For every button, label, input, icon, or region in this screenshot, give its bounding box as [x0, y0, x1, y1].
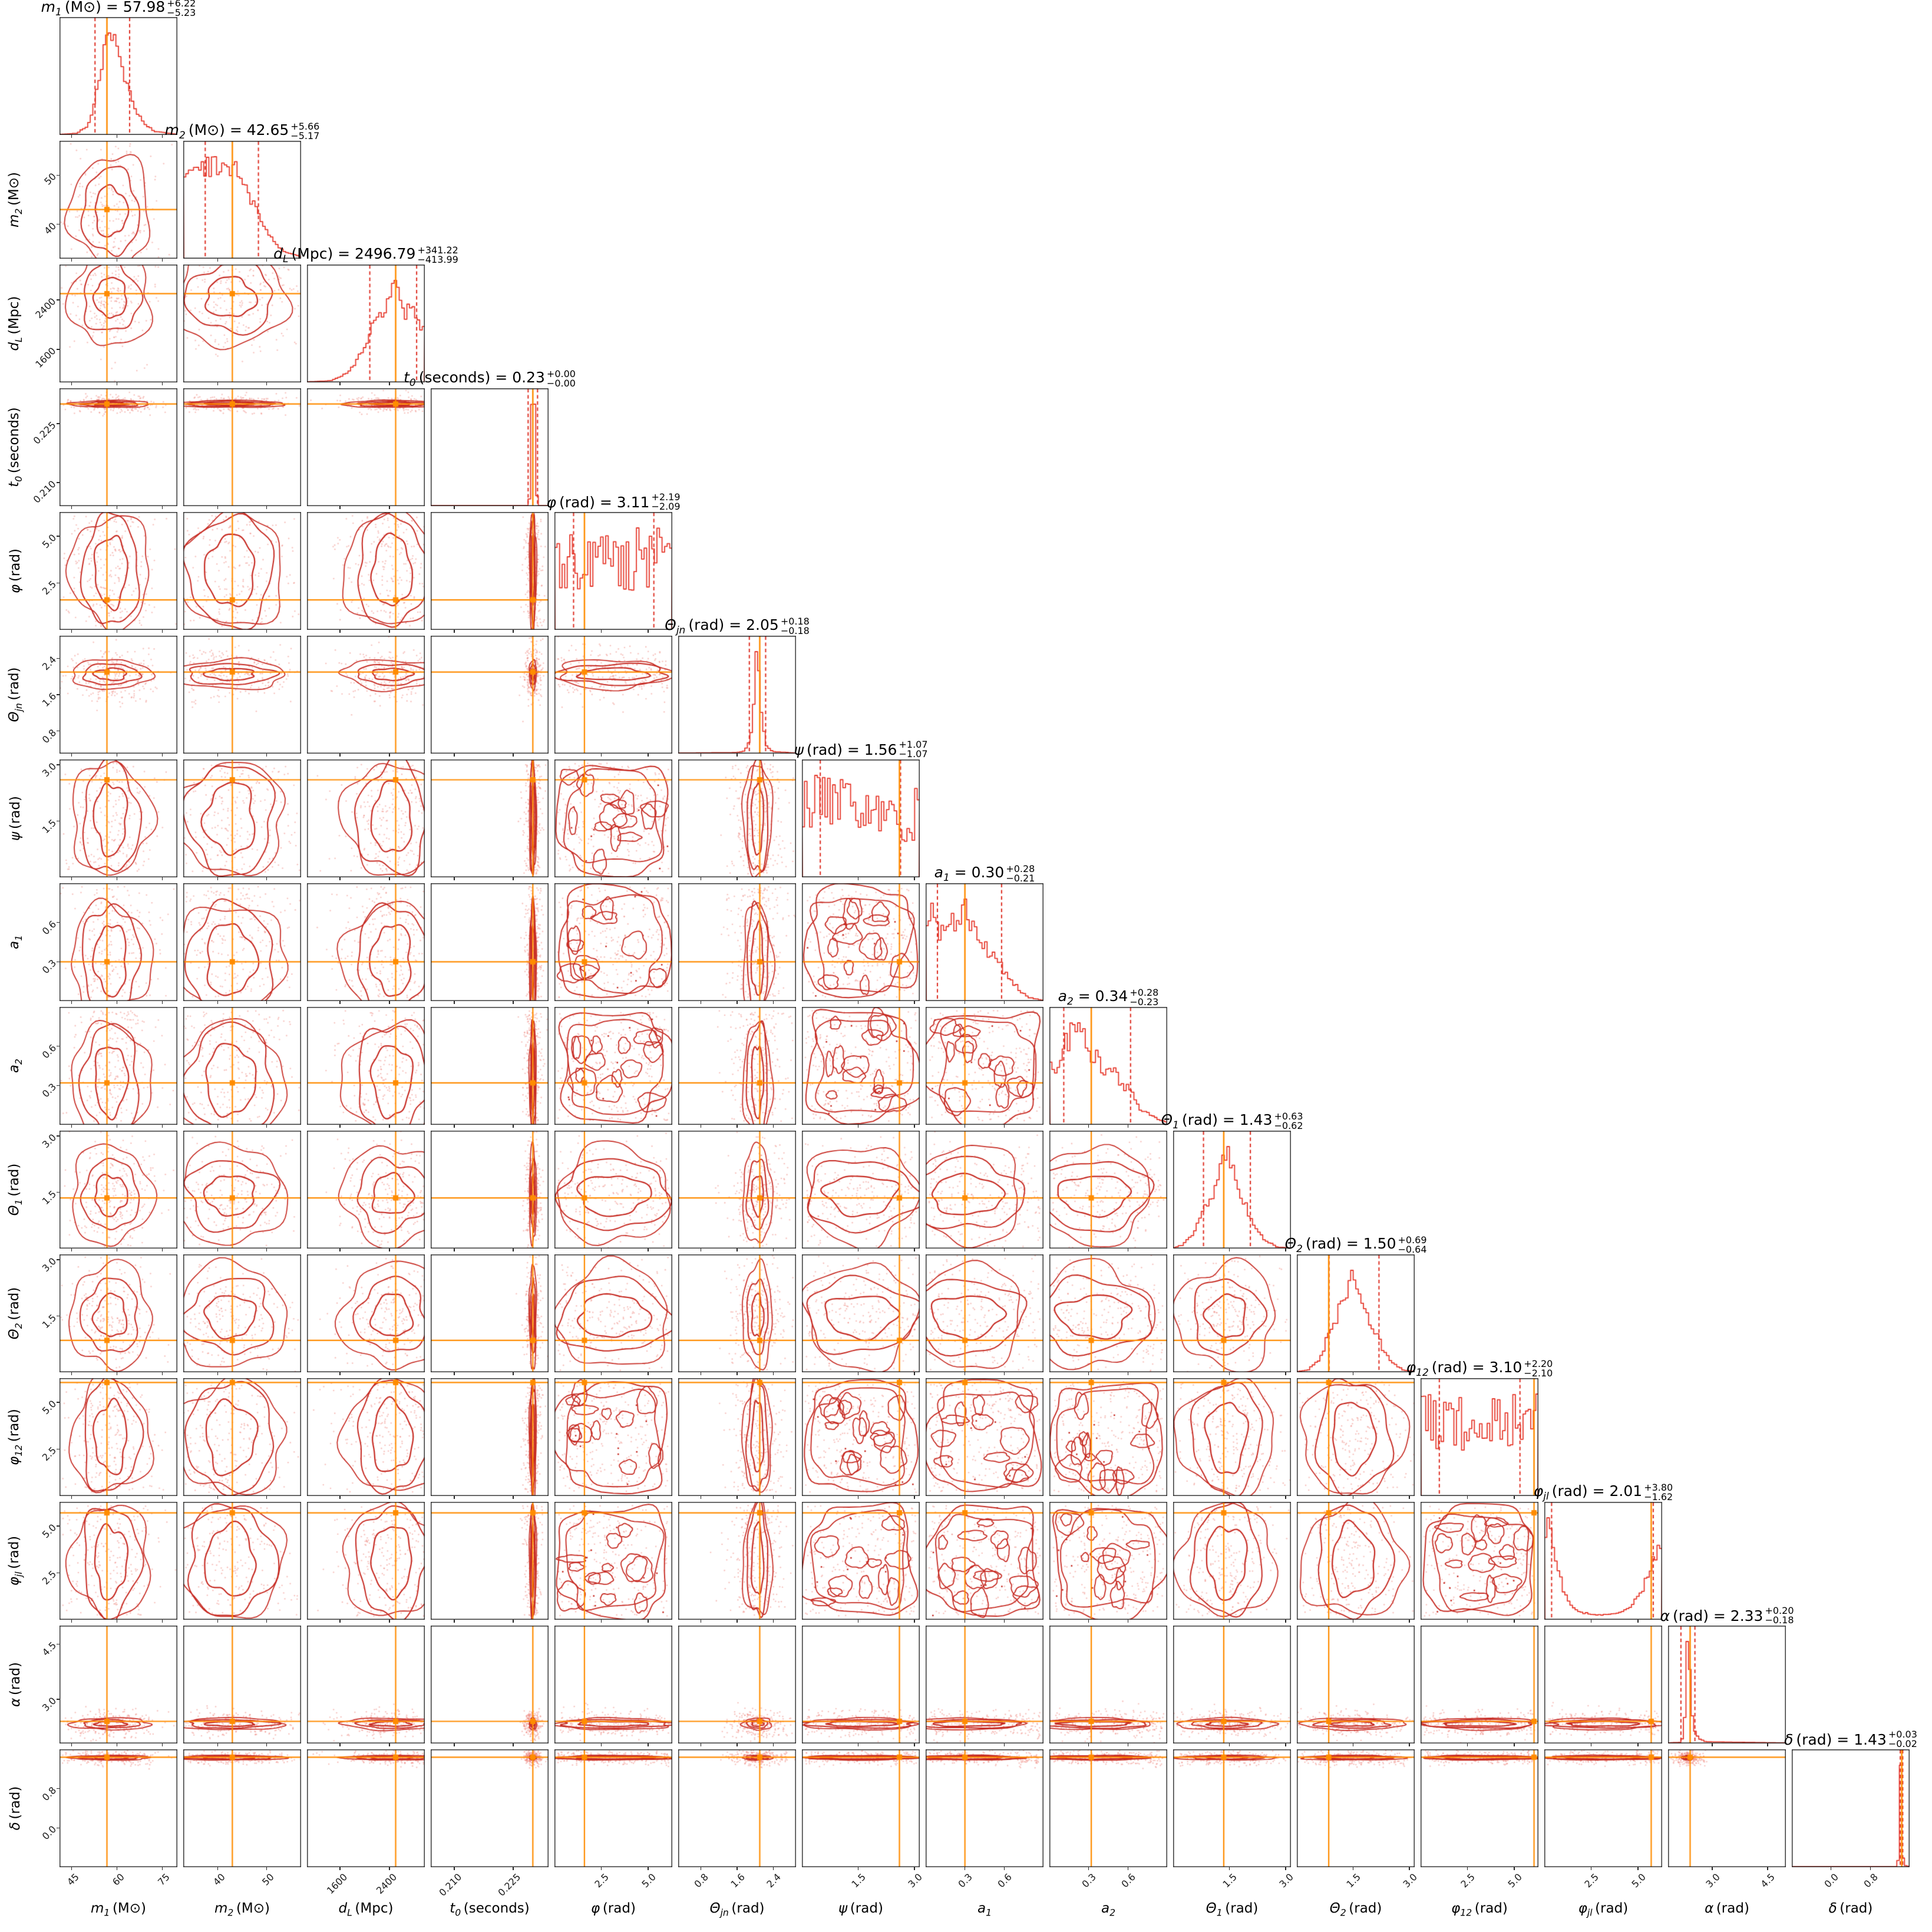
- x-tick-m2-0: [217, 1496, 219, 1499]
- subplot-dL-t0: [307, 388, 425, 506]
- contour-canvas-phi-theta2: [554, 1254, 672, 1372]
- x-tick-label-delta-0: 0.0: [1822, 1871, 1841, 1890]
- x-tick-t0-1: [513, 1743, 514, 1746]
- contour-canvas-dL-alpha: [307, 1626, 425, 1743]
- x-tick-dL-0: [339, 1867, 341, 1870]
- subplot-phi-phi12: [554, 1378, 672, 1496]
- x-tick-phi-0: [601, 1743, 602, 1746]
- subplot-t0-phijl: [431, 1502, 549, 1620]
- contour-canvas-dL-phi: [307, 512, 425, 630]
- subplot-m1-delta: [60, 1749, 177, 1867]
- x-tick-thetajn-1: [737, 1620, 738, 1623]
- subplot-m2-thetajn: [183, 636, 301, 754]
- contour-canvas-a1-theta1: [926, 1131, 1043, 1249]
- x-tick-label-phijl-0: 2.5: [1583, 1871, 1601, 1890]
- contour-canvas-theta1-phi12: [1173, 1378, 1291, 1496]
- contour-canvas-thetajn-delta: [678, 1749, 796, 1867]
- contour-canvas-a1-delta: [926, 1749, 1043, 1867]
- x-tick-label-a2-1: 0.6: [1119, 1871, 1137, 1890]
- subplot-phi-theta1: [554, 1131, 672, 1249]
- contour-canvas-psi-theta1: [802, 1131, 920, 1249]
- subplot-phi-a1: [554, 883, 672, 1001]
- x-tick-phi-1: [648, 1372, 649, 1375]
- x-tick-theta2-0: [1353, 1743, 1354, 1746]
- x-tick-t0-1: [513, 877, 514, 880]
- x-tick-m2-0: [217, 1743, 219, 1746]
- x-tick-m1-0: [71, 754, 72, 757]
- contour-canvas-phi-theta1: [554, 1131, 672, 1249]
- y-tick-label-a2-1: 0.6: [39, 1042, 58, 1060]
- y-axis-label-psi: ψ (rad): [8, 796, 23, 841]
- x-axis-label-m2: m2 (M⊙): [214, 1901, 270, 1918]
- contour-canvas-m1-theta1: [60, 1131, 177, 1249]
- x-tick-label-dL-0: 1600: [325, 1871, 349, 1896]
- x-tick-m1-0: [71, 630, 72, 633]
- x-tick-a1-0: [965, 1125, 966, 1128]
- x-tick-m1-1: [117, 506, 118, 509]
- subplot-m2-phi12: [183, 1378, 301, 1496]
- contour-canvas-m1-a2: [60, 1007, 177, 1125]
- x-tick-dL-1: [389, 1867, 390, 1870]
- subplot-phi12-delta: [1421, 1749, 1538, 1867]
- subplot-phi-a2: [554, 1007, 672, 1125]
- x-tick-phi-0: [601, 754, 602, 757]
- y-axis-label-t0: t0 (seconds): [6, 407, 24, 487]
- contour-canvas-t0-a1: [431, 883, 549, 1001]
- hist-canvas-alpha: [1668, 1626, 1786, 1743]
- hist-canvas-phijl: [1544, 1502, 1662, 1620]
- subplot-theta1-delta: [1173, 1749, 1291, 1867]
- param-title-errors-alpha: +0.20−0.18: [1765, 1606, 1794, 1626]
- x-tick-t0-1: [513, 1867, 514, 1870]
- contour-canvas-dL-phi12: [307, 1378, 425, 1496]
- y-tick-phijl-1: [57, 1525, 60, 1527]
- subplot-thetajn-phijl: [678, 1502, 796, 1620]
- contour-canvas-theta2-phijl: [1297, 1502, 1415, 1620]
- contour-canvas-t0-psi: [431, 759, 549, 877]
- contour-canvas-psi-theta2: [802, 1254, 920, 1372]
- x-tick-dL-0: [339, 630, 341, 633]
- subplot-dL-phi: [307, 512, 425, 630]
- x-tick-theta2-1: [1409, 1496, 1410, 1499]
- x-tick-t0-1: [513, 1249, 514, 1251]
- x-tick-psi-0: [858, 1125, 859, 1128]
- subplot-m1-a1: [60, 883, 177, 1001]
- x-tick-m2-1: [266, 1620, 267, 1623]
- x-tick-m1-0: [71, 1867, 72, 1870]
- x-tick-psi-1: [914, 1867, 915, 1870]
- subplot-phi12-phijl: [1421, 1502, 1538, 1620]
- x-tick-t0-0: [454, 1125, 455, 1128]
- x-tick-label-dL-1: 2400: [374, 1871, 399, 1896]
- x-tick-m1-0: [71, 1125, 72, 1128]
- x-tick-phijl-0: [1591, 1743, 1592, 1746]
- x-tick-psi-1: [914, 877, 915, 880]
- hist-thetajn: [678, 636, 796, 754]
- subplot-dL-psi: [307, 759, 425, 877]
- contour-canvas-phi-phi12: [554, 1378, 672, 1496]
- subplot-m2-alpha: [183, 1626, 301, 1743]
- x-tick-m1-2: [162, 259, 163, 262]
- contour-canvas-phi-a1: [554, 883, 672, 1001]
- y-tick-phi-1: [57, 536, 60, 537]
- x-tick-thetajn-0: [701, 1496, 702, 1499]
- x-tick-a1-1: [1004, 1496, 1005, 1499]
- x-tick-m1-1: [117, 135, 118, 138]
- contour-canvas-a2-phijl: [1049, 1502, 1167, 1620]
- y-tick-label-thetajn-1: 1.6: [39, 691, 58, 709]
- x-tick-a2-0: [1088, 1496, 1089, 1499]
- x-axis-label-a1: a1: [977, 1901, 992, 1918]
- x-tick-a1-1: [1004, 1249, 1005, 1251]
- contour-canvas-psi-a1: [802, 883, 920, 1001]
- x-tick-a2-1: [1128, 1125, 1129, 1128]
- x-tick-a2-1: [1128, 1496, 1129, 1499]
- param-title-errors-theta1: +0.63−0.62: [1274, 1112, 1303, 1131]
- x-tick-label-alpha-0: 3.0: [1703, 1871, 1722, 1890]
- contour-canvas-phi-psi: [554, 759, 672, 877]
- hist-psi: [802, 759, 920, 877]
- subplot-m2-phijl: [183, 1502, 301, 1620]
- x-tick-alpha-1: [1767, 1867, 1768, 1870]
- subplot-a1-delta: [926, 1749, 1043, 1867]
- subplot-phijl-alpha: [1544, 1626, 1662, 1743]
- subplot-dL-delta: [307, 1749, 425, 1867]
- contour-canvas-dL-thetajn: [307, 636, 425, 754]
- x-tick-theta1-0: [1229, 1249, 1230, 1251]
- param-title-errors-a2: +0.28−0.23: [1130, 988, 1158, 1008]
- x-tick-phijl-1: [1637, 1620, 1639, 1623]
- x-tick-m1-2: [162, 382, 163, 385]
- x-tick-a1-1: [1004, 1867, 1005, 1870]
- subplot-psi-phi12: [802, 1378, 920, 1496]
- hist-m2: [183, 141, 301, 259]
- contour-canvas-a2-theta1: [1049, 1131, 1167, 1249]
- x-tick-psi-0: [858, 1867, 859, 1870]
- x-tick-thetajn-1: [737, 1867, 738, 1870]
- subplot-m1-thetajn: [60, 636, 177, 754]
- contour-canvas-phijl-alpha: [1544, 1626, 1662, 1743]
- contour-canvas-t0-phi12: [431, 1378, 549, 1496]
- x-tick-a2-0: [1088, 1249, 1089, 1251]
- x-tick-label-theta1-0: 1.5: [1221, 1871, 1239, 1890]
- hist-canvas-a2: [1049, 1007, 1167, 1125]
- x-tick-m2-1: [266, 1125, 267, 1128]
- x-tick-t0-0: [454, 1249, 455, 1251]
- x-axis-label-phi: φ (rad): [591, 1901, 636, 1916]
- x-tick-thetajn-0: [701, 1620, 702, 1623]
- subplot-a1-alpha: [926, 1626, 1043, 1743]
- x-tick-m1-0: [71, 506, 72, 509]
- y-axis-label-a2: a2: [6, 1059, 24, 1073]
- x-tick-a2-1: [1128, 1867, 1129, 1870]
- x-tick-thetajn-1: [737, 1496, 738, 1499]
- y-tick-alpha-0: [57, 1699, 60, 1700]
- subplot-dL-theta1: [307, 1131, 425, 1249]
- y-tick-label-theta1-0: 1.5: [39, 1188, 58, 1206]
- x-tick-psi-0: [858, 877, 859, 880]
- subplot-m1-alpha: [60, 1626, 177, 1743]
- param-title-errors-delta: +0.03−0.02: [1888, 1730, 1917, 1749]
- x-tick-phi-0: [601, 877, 602, 880]
- x-tick-dL-0: [339, 506, 341, 509]
- x-tick-psi-0: [858, 1496, 859, 1499]
- x-tick-psi-0: [858, 1001, 859, 1004]
- param-title-text-m2: m2 (M⊙) = 42.65: [165, 121, 289, 141]
- subplot-psi-a1: [802, 883, 920, 1001]
- contour-canvas-thetajn-phijl: [678, 1502, 796, 1620]
- y-tick-t0-1: [57, 423, 60, 424]
- x-tick-t0-0: [454, 1496, 455, 1499]
- param-title-a1: a1 = 0.30+0.28−0.21: [934, 864, 1035, 884]
- contour-canvas-t0-a2: [431, 1007, 549, 1125]
- y-tick-label-a2-0: 0.3: [39, 1081, 58, 1099]
- y-tick-dL-0: [57, 349, 60, 350]
- subplot-m2-phi: [183, 512, 301, 630]
- param-title-psi: ψ (rad) = 1.56+1.07−1.07: [794, 740, 927, 759]
- x-tick-dL-1: [389, 754, 390, 757]
- subplot-thetajn-theta2: [678, 1254, 796, 1372]
- x-tick-label-delta-1: 0.8: [1861, 1871, 1880, 1890]
- x-tick-theta1-1: [1285, 1372, 1286, 1375]
- x-tick-m1-2: [162, 1125, 163, 1128]
- subplot-m2-a2: [183, 1007, 301, 1125]
- subplot-dL-phi12: [307, 1378, 425, 1496]
- y-axis-label-a1: a1: [6, 935, 24, 949]
- y-tick-thetajn-1: [57, 694, 60, 695]
- contour-canvas-alpha-delta: [1668, 1749, 1786, 1867]
- x-tick-m1-1: [117, 1001, 118, 1004]
- contour-canvas-m2-a1: [183, 883, 301, 1001]
- x-tick-label-theta2-0: 1.5: [1345, 1871, 1363, 1890]
- x-axis-label-phijl: φjl (rad): [1578, 1901, 1629, 1918]
- subplot-a1-theta1: [926, 1131, 1043, 1249]
- x-tick-phi-0: [601, 1001, 602, 1004]
- param-title-theta2: Θ2 (rad) = 1.50+0.69−0.64: [1284, 1235, 1426, 1255]
- hist-canvas-t0: [431, 388, 549, 506]
- contour-canvas-m1-dL: [60, 265, 177, 382]
- param-title-text-alpha: α (rad) = 2.33: [1660, 1607, 1763, 1624]
- x-tick-m1-0: [71, 259, 72, 262]
- x-tick-theta2-0: [1353, 1620, 1354, 1623]
- y-tick-label-m2-0: 40: [42, 220, 58, 236]
- x-tick-phi-0: [601, 1249, 602, 1251]
- subplot-a2-delta: [1049, 1749, 1167, 1867]
- y-axis-label-theta1: Θ1 (rad): [6, 1164, 24, 1216]
- hist-alpha: [1668, 1626, 1786, 1743]
- subplot-t0-psi: [431, 759, 549, 877]
- param-title-errors-phi12: +2.20−2.10: [1524, 1359, 1553, 1379]
- x-tick-phi12-0: [1467, 1496, 1468, 1499]
- param-title-errors-dL: +341.22−413.99: [417, 246, 458, 265]
- subplot-t0-delta: [431, 1749, 549, 1867]
- subplot-m1-theta2: [60, 1254, 177, 1372]
- x-tick-phi-1: [648, 1001, 649, 1004]
- x-tick-phi-1: [648, 630, 649, 633]
- x-tick-thetajn-2: [773, 1867, 774, 1870]
- subplot-psi-theta1: [802, 1131, 920, 1249]
- hist-m1: [60, 17, 177, 135]
- x-tick-m1-2: [162, 1620, 163, 1623]
- x-tick-dL-1: [389, 1743, 390, 1746]
- subplot-phi-delta: [554, 1749, 672, 1867]
- hist-canvas-m2: [183, 141, 301, 259]
- param-title-m2: m2 (M⊙) = 42.65+5.66−5.17: [165, 121, 320, 141]
- x-tick-a1-0: [965, 1249, 966, 1251]
- y-axis-label-m2: m2 (M⊙): [6, 172, 24, 227]
- subplot-t0-phi12: [431, 1378, 549, 1496]
- x-tick-m1-2: [162, 1867, 163, 1870]
- subplot-a1-theta2: [926, 1254, 1043, 1372]
- contour-canvas-thetajn-a2: [678, 1007, 796, 1125]
- contour-canvas-t0-thetajn: [431, 636, 549, 754]
- subplot-m1-psi: [60, 759, 177, 877]
- x-tick-t0-0: [454, 754, 455, 757]
- x-tick-dL-0: [339, 877, 341, 880]
- x-tick-thetajn-1: [737, 1249, 738, 1251]
- param-title-delta: δ (rad) = 1.43+0.03−0.02: [1784, 1730, 1917, 1749]
- subplot-theta2-phijl: [1297, 1502, 1415, 1620]
- contour-canvas-thetajn-psi: [678, 759, 796, 877]
- x-tick-m1-1: [117, 754, 118, 757]
- param-title-errors-psi: +1.07−1.07: [899, 740, 927, 759]
- contour-canvas-theta2-phi12: [1297, 1378, 1415, 1496]
- x-tick-dL-0: [339, 1249, 341, 1251]
- x-tick-t0-0: [454, 1372, 455, 1375]
- param-title-a2: a2 = 0.34+0.28−0.23: [1058, 988, 1159, 1008]
- subplot-a2-alpha: [1049, 1626, 1167, 1743]
- subplot-theta2-phi12: [1297, 1378, 1415, 1496]
- hist-canvas-dL: [307, 265, 425, 382]
- x-tick-label-theta1-1: 3.0: [1277, 1871, 1295, 1890]
- x-tick-thetajn-2: [773, 1001, 774, 1004]
- contour-canvas-m1-delta: [60, 1749, 177, 1867]
- x-tick-theta1-1: [1285, 1620, 1286, 1623]
- x-tick-psi-1: [914, 1496, 915, 1499]
- y-tick-m2-1: [57, 175, 60, 176]
- x-tick-psi-0: [858, 1372, 859, 1375]
- x-tick-a2-1: [1128, 1372, 1129, 1375]
- x-tick-dL-1: [389, 1496, 390, 1499]
- x-tick-t0-0: [454, 877, 455, 880]
- y-tick-alpha-1: [57, 1644, 60, 1645]
- x-tick-phi-1: [648, 754, 649, 757]
- x-tick-label-m1-1: 60: [110, 1871, 127, 1888]
- x-tick-phi12-1: [1514, 1496, 1515, 1499]
- x-axis-label-delta: δ (rad): [1829, 1901, 1873, 1916]
- subplot-m2-dL: [183, 265, 301, 382]
- contour-canvas-m1-theta2: [60, 1254, 177, 1372]
- x-axis-label-theta2: Θ2 (rad): [1330, 1901, 1382, 1918]
- contour-canvas-thetajn-a1: [678, 883, 796, 1001]
- x-tick-m2-1: [266, 1372, 267, 1375]
- x-axis-label-theta1: Θ1 (rad): [1206, 1901, 1259, 1918]
- contour-canvas-psi-a2: [802, 1007, 920, 1125]
- x-tick-m1-1: [117, 877, 118, 880]
- x-tick-dL-1: [389, 630, 390, 633]
- subplot-a1-a2: [926, 1007, 1043, 1125]
- x-tick-m1-1: [117, 1372, 118, 1375]
- x-tick-m2-0: [217, 1125, 219, 1128]
- y-tick-phi-0: [57, 583, 60, 584]
- x-tick-t0-1: [513, 1125, 514, 1128]
- subplot-m2-t0: [183, 388, 301, 506]
- subplot-phi-theta2: [554, 1254, 672, 1372]
- x-tick-t0-0: [454, 630, 455, 633]
- y-tick-phijl-0: [57, 1573, 60, 1574]
- subplot-psi-delta: [802, 1749, 920, 1867]
- x-tick-thetajn-0: [701, 1249, 702, 1251]
- hist-canvas-m1: [60, 17, 177, 135]
- x-tick-thetajn-0: [701, 1125, 702, 1128]
- hist-a2: [1049, 1007, 1167, 1125]
- param-title-alpha: α (rad) = 2.33+0.20−0.18: [1660, 1606, 1794, 1626]
- contour-canvas-theta1-delta: [1173, 1749, 1291, 1867]
- x-tick-dL-1: [389, 1001, 390, 1004]
- x-tick-thetajn-1: [737, 1001, 738, 1004]
- x-tick-thetajn-2: [773, 1496, 774, 1499]
- x-tick-phi-1: [648, 877, 649, 880]
- contour-canvas-m1-a1: [60, 883, 177, 1001]
- contour-canvas-m2-delta: [183, 1749, 301, 1867]
- x-tick-label-theta2-1: 3.0: [1401, 1871, 1419, 1890]
- x-tick-a2-0: [1088, 1867, 1089, 1870]
- hist-dL: [307, 265, 425, 382]
- subplot-t0-a2: [431, 1007, 549, 1125]
- y-tick-psi-1: [57, 764, 60, 765]
- hist-theta1: [1173, 1131, 1291, 1249]
- x-tick-psi-1: [914, 1125, 915, 1128]
- x-tick-dL-0: [339, 1125, 341, 1128]
- contour-canvas-thetajn-alpha: [678, 1626, 796, 1743]
- x-tick-dL-0: [339, 1372, 341, 1375]
- subplot-t0-theta1: [431, 1131, 549, 1249]
- x-tick-thetajn-0: [701, 1867, 702, 1870]
- x-tick-thetajn-2: [773, 1372, 774, 1375]
- x-tick-m2-1: [266, 1496, 267, 1499]
- x-tick-m2-1: [266, 1249, 267, 1251]
- x-tick-m2-0: [217, 506, 219, 509]
- subplot-theta1-phi12: [1173, 1378, 1291, 1496]
- contour-canvas-phi12-phijl: [1421, 1502, 1538, 1620]
- y-tick-dL-1: [57, 299, 60, 300]
- subplot-m2-a1: [183, 883, 301, 1001]
- contour-canvas-a1-phijl: [926, 1502, 1043, 1620]
- contour-canvas-thetajn-theta2: [678, 1254, 796, 1372]
- hist-t0: [431, 388, 549, 506]
- x-tick-label-a1-1: 0.6: [995, 1871, 1013, 1890]
- y-tick-phi12-0: [57, 1449, 60, 1450]
- x-tick-t0-0: [454, 506, 455, 509]
- contour-canvas-psi-phi12: [802, 1378, 920, 1496]
- x-tick-delta-0: [1831, 1867, 1832, 1870]
- subplot-thetajn-psi: [678, 759, 796, 877]
- x-tick-t0-1: [513, 754, 514, 757]
- x-tick-phi12-0: [1467, 1743, 1468, 1746]
- contour-canvas-dL-phijl: [307, 1502, 425, 1620]
- x-tick-a1-0: [965, 1743, 966, 1746]
- contour-canvas-m2-theta2: [183, 1254, 301, 1372]
- subplot-t0-theta2: [431, 1254, 549, 1372]
- contour-canvas-theta1-phijl: [1173, 1502, 1291, 1620]
- subplot-dL-phijl: [307, 1502, 425, 1620]
- contour-canvas-m1-psi: [60, 759, 177, 877]
- x-tick-m1-1: [117, 1620, 118, 1623]
- subplot-a2-phijl: [1049, 1502, 1167, 1620]
- y-tick-label-t0-1: 0.225: [31, 420, 58, 447]
- subplot-a2-theta2: [1049, 1254, 1167, 1372]
- x-tick-theta2-0: [1353, 1496, 1354, 1499]
